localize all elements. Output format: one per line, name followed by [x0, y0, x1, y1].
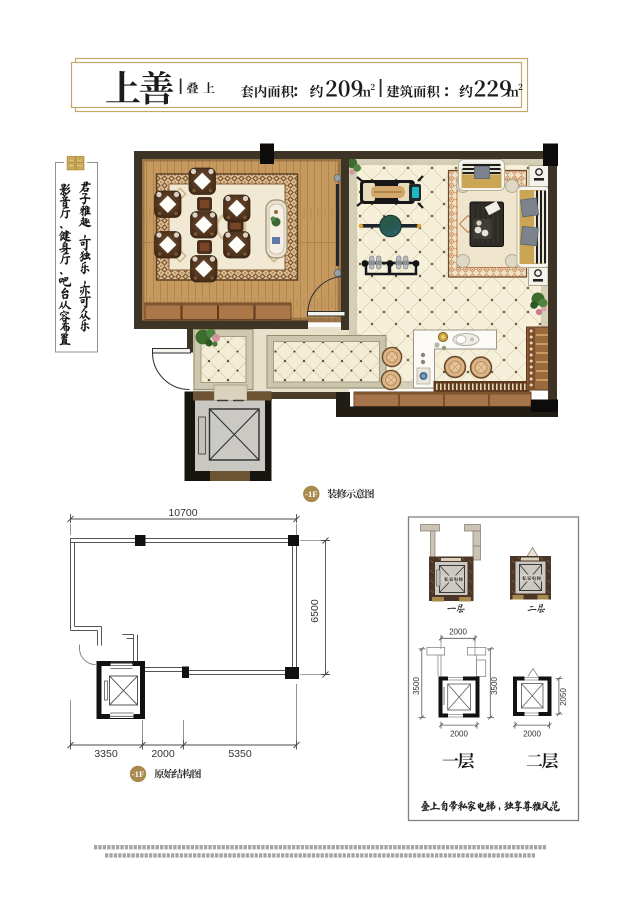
svg-text:2000: 2000 [151, 748, 175, 760]
svg-text:2000: 2000 [450, 730, 468, 739]
svg-text:-1F: -1F [305, 489, 318, 499]
svg-text:-1F: -1F [132, 769, 145, 779]
svg-text:5350: 5350 [228, 748, 252, 760]
svg-text:3500: 3500 [412, 677, 421, 695]
svg-text:3350: 3350 [94, 748, 118, 760]
svg-text:10700: 10700 [168, 507, 197, 519]
svg-text:2000: 2000 [449, 628, 467, 637]
svg-text:3500: 3500 [490, 677, 499, 695]
svg-text:6500: 6500 [309, 599, 321, 623]
svg-text:2000: 2000 [523, 730, 541, 739]
svg-text:2050: 2050 [559, 688, 568, 706]
